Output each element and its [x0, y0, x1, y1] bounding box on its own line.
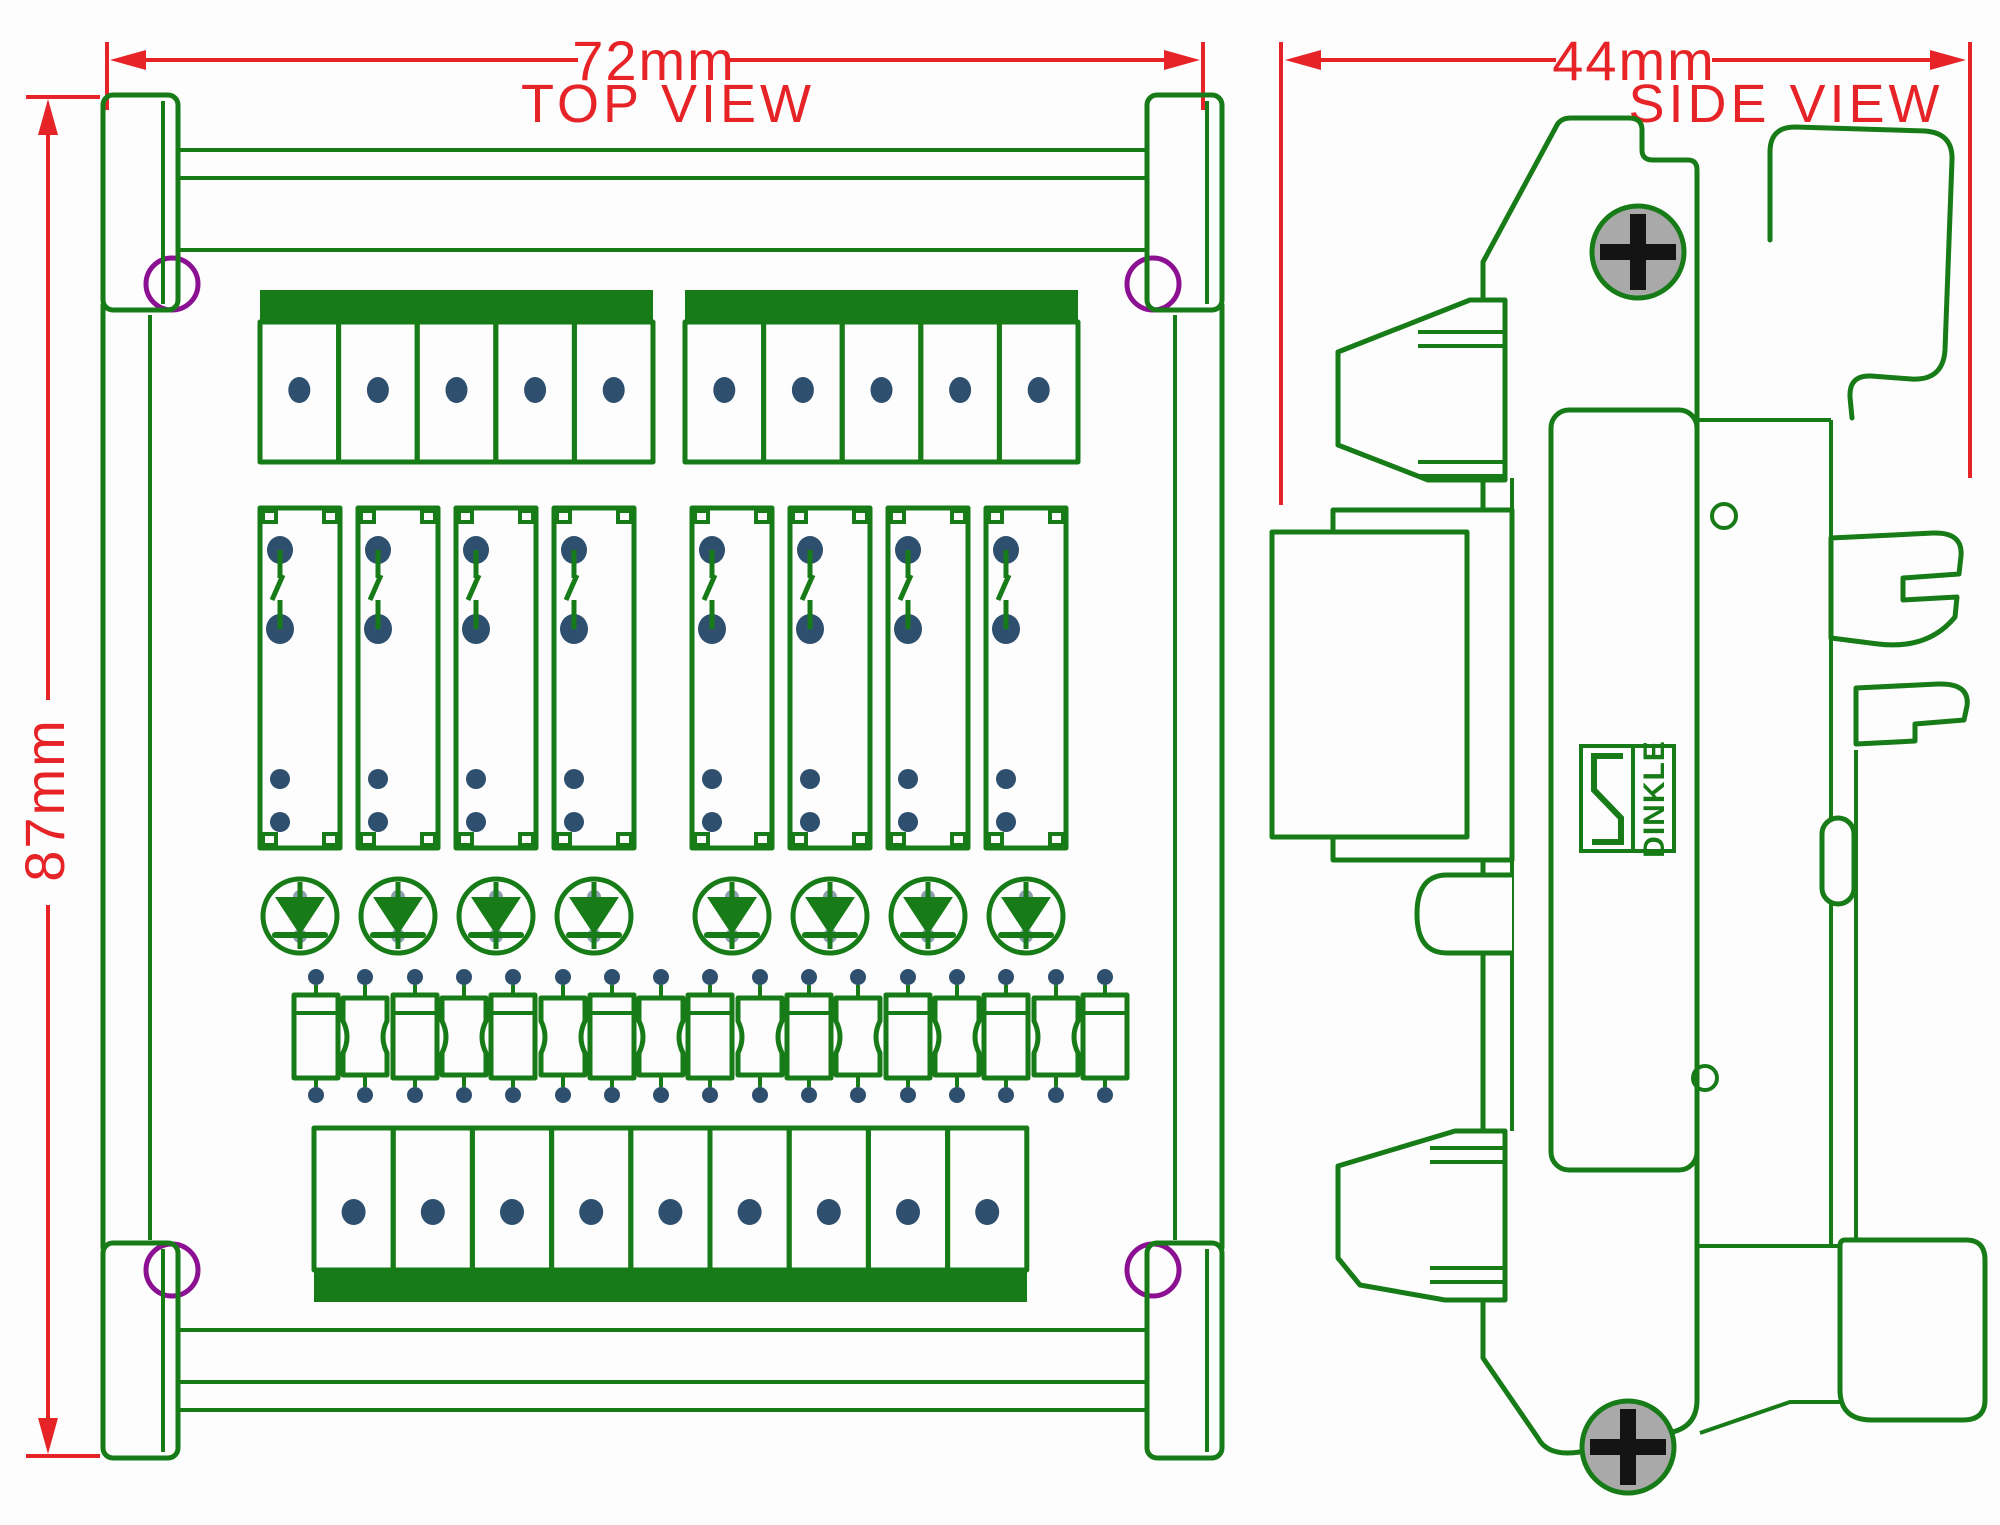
clip-slot: [1822, 818, 1854, 904]
dinkle-logo-text: DINKLE: [1638, 740, 1671, 858]
resistor-element: [1034, 969, 1078, 1103]
relay-row: [260, 508, 1066, 848]
resistor-element: [442, 969, 486, 1103]
arrowhead-left-icon: [1285, 50, 1321, 70]
diode-row: [263, 879, 1063, 953]
din-bracket-top-left: [103, 95, 178, 310]
resistor-element: [836, 969, 880, 1103]
output-terminal-block: [314, 1128, 1027, 1302]
led-diode-symbol: [891, 879, 965, 953]
led-diode-symbol: [361, 879, 435, 953]
relay-symbol: [358, 508, 438, 848]
relay-symbol: [260, 508, 340, 848]
dimension-left-height: 87mm: [13, 97, 100, 1456]
arrowhead-down-icon: [38, 1418, 58, 1454]
arrowhead-right-icon: [1164, 50, 1200, 70]
panel-screw-bottom: [1582, 1401, 1674, 1493]
pin-hole-upper: [1712, 504, 1736, 528]
led-dome: [1417, 875, 1512, 953]
terminal-wedge-upper: [1338, 300, 1505, 480]
relay-symbol: [790, 508, 870, 848]
panel-screw-top: [1592, 206, 1684, 298]
relay-symbol: [888, 508, 968, 848]
terminal-cell: [393, 1128, 472, 1270]
mounting-hole-top-left: [146, 258, 198, 310]
resistor-element: [639, 969, 683, 1103]
din-bracket-bottom-left: [103, 1243, 178, 1458]
resistor-element: [590, 969, 634, 1103]
resistor-element: [688, 969, 732, 1103]
terminal-cell: [339, 322, 418, 462]
led-diode-symbol: [695, 879, 769, 953]
relay-module-dimension-drawing: 72mm 87mm 44mm TOP VIEW SIDE VIEW: [0, 0, 2000, 1525]
input-terminal-block-right: [685, 290, 1078, 462]
led-diode-symbol: [557, 879, 631, 953]
relay-side-front: [1272, 532, 1467, 837]
dimension-label-87mm: 87mm: [13, 718, 76, 882]
arrowhead-left-icon: [110, 50, 146, 70]
resistor-row: [294, 969, 1127, 1103]
terminal-cell: [552, 1128, 631, 1270]
din-rail-lines-bottom: [178, 1330, 1147, 1410]
clip-lower-tooth: [1856, 684, 1967, 744]
resistor-element: [886, 969, 930, 1103]
resistor-element: [935, 969, 979, 1103]
relay-symbol: [692, 508, 772, 848]
terminal-cell: [789, 1128, 868, 1270]
top-view-drawing: [103, 95, 1222, 1458]
led-diode-symbol: [459, 879, 533, 953]
din-bracket-bottom-right: [1147, 1243, 1222, 1458]
resistor-element: [1083, 969, 1127, 1103]
resistor-element: [984, 969, 1028, 1103]
input-terminal-block-left: [260, 290, 653, 462]
resistor-element: [738, 969, 782, 1103]
arrowhead-up-icon: [38, 99, 58, 135]
resistor-element: [294, 969, 338, 1103]
terminal-wedge-lower: [1338, 1131, 1505, 1300]
clip-spring-tooth: [1831, 533, 1961, 645]
terminal-cell: [948, 1128, 1027, 1270]
resistor-element: [343, 969, 387, 1103]
terminal-cell: [868, 1128, 947, 1270]
arrowhead-right-icon: [1930, 50, 1966, 70]
terminal-cell: [710, 1128, 789, 1270]
resistor-element: [491, 969, 535, 1103]
foot-connector: [1700, 1402, 1840, 1433]
resistor-element: [393, 969, 437, 1103]
terminal-cell: [574, 322, 653, 462]
side-view-title: SIDE VIEW: [1628, 74, 1943, 134]
terminal-cell: [764, 322, 843, 462]
mounting-hole-bottom-left: [146, 1244, 198, 1296]
mounting-hole-top-right: [1127, 258, 1179, 310]
relay-symbol: [554, 508, 634, 848]
terminal-cell: [314, 1128, 393, 1270]
relay-symbol: [986, 508, 1066, 848]
terminal-cell: [685, 322, 764, 462]
terminal-cell: [260, 322, 339, 462]
din-hook-top: [1770, 127, 1952, 418]
terminal-cell: [999, 322, 1078, 462]
led-diode-symbol: [989, 879, 1063, 953]
resistor-element: [787, 969, 831, 1103]
terminal-cell: [472, 1128, 551, 1270]
din-rail-lines-top: [178, 150, 1147, 250]
technical-drawing: 72mm 87mm 44mm TOP VIEW SIDE VIEW: [0, 0, 2000, 1525]
top-view-title: TOP VIEW: [521, 74, 815, 134]
terminal-cell: [417, 322, 496, 462]
terminal-cell: [842, 322, 921, 462]
relay-symbol: [456, 508, 536, 848]
terminal-cell: [921, 322, 1000, 462]
din-bracket-top-right: [1147, 95, 1222, 310]
resistor-element: [541, 969, 585, 1103]
side-view-drawing: DINKLE: [1272, 118, 1985, 1493]
terminal-cell: [631, 1128, 710, 1270]
led-diode-symbol: [793, 879, 867, 953]
terminal-cell: [496, 322, 575, 462]
led-diode-symbol: [263, 879, 337, 953]
mounting-hole-bottom-right: [1127, 1244, 1179, 1296]
din-foot-bottom: [1840, 1240, 1985, 1420]
